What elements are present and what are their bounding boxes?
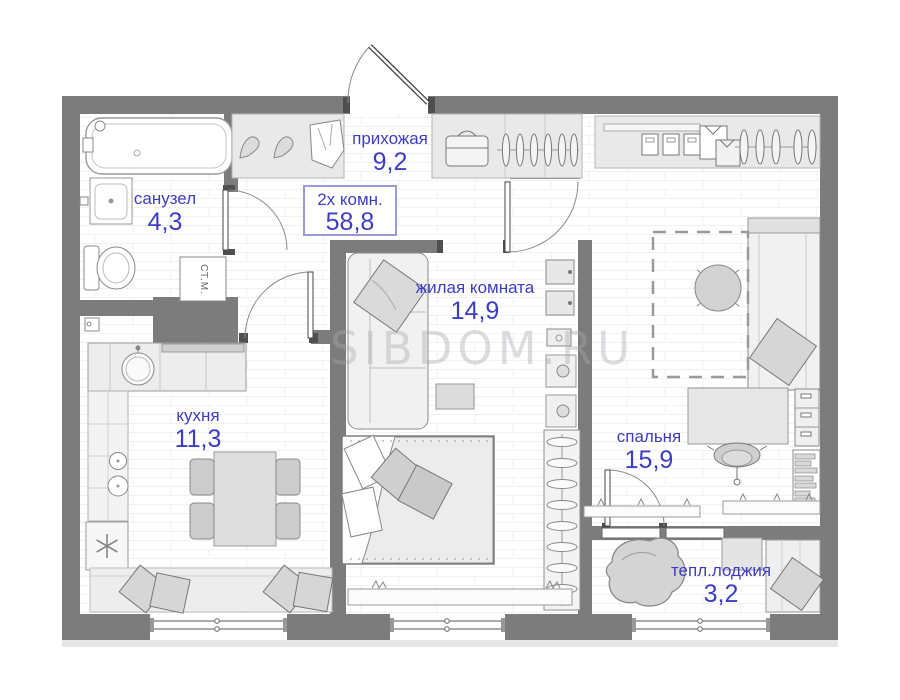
room-label-bedroom: спальня 15,9 [593, 428, 705, 473]
room-area: 11,3 [145, 426, 251, 452]
windows [150, 616, 770, 638]
apartment-type-label: 2х комн. [305, 190, 395, 210]
room-area: 15,9 [593, 447, 705, 473]
pouf-icon [695, 265, 741, 311]
room-label-hallway: прихожая 9,2 [330, 130, 450, 175]
bathtub-icon [83, 118, 232, 174]
dining-table-icon [214, 452, 276, 546]
kitchen-counter-icon [88, 343, 246, 391]
room-name: прихожая [330, 130, 450, 148]
room-area: 3,2 [648, 581, 794, 607]
floorplan-image: SIBDOM.RU 2х комн. 58,8 прихожая 9,2 сан… [0, 0, 900, 700]
room-name: кухня [145, 407, 251, 425]
room-label-living-room: жилая комната 14,9 [385, 279, 565, 324]
window-seat-icon [90, 565, 333, 613]
bed-bedroom-icon [748, 218, 820, 390]
room-name: тепл.лоджия [648, 562, 794, 580]
apartment-title-box: 2х комн. 58,8 [303, 185, 397, 236]
apartment-total-area: 58,8 [305, 210, 395, 235]
room-area: 9,2 [330, 149, 450, 175]
coffee-table-icon [436, 384, 474, 409]
room-label-bathroom: санузел 4,3 [105, 190, 225, 235]
room-name: санузел [105, 190, 225, 208]
room-label-loggia: тепл.лоджия 3,2 [648, 562, 794, 607]
shoe-rack-icon [232, 114, 344, 178]
hallway-storage [232, 114, 820, 178]
drawer-unit-icon [795, 389, 819, 446]
bed-living-icon [342, 435, 494, 564]
closet-shelves-icon [595, 116, 820, 168]
watermark: SIBDOM.RU [330, 322, 635, 375]
bookshelf-icon [793, 450, 820, 506]
fridge-icon [86, 522, 128, 570]
ground-shadow [62, 640, 838, 647]
room-area: 14,9 [385, 298, 565, 324]
wardrobe-hangers-icon [432, 114, 582, 178]
washing-machine-label-wrap: СТ.М. [180, 257, 226, 301]
washing-machine-label: СТ.М. [198, 264, 209, 295]
toilet-icon [84, 246, 135, 290]
room-area: 4,3 [105, 209, 225, 235]
room-name: жилая комната [385, 279, 565, 297]
room-name: спальня [593, 428, 705, 446]
room-label-kitchen: кухня 11,3 [145, 407, 251, 452]
